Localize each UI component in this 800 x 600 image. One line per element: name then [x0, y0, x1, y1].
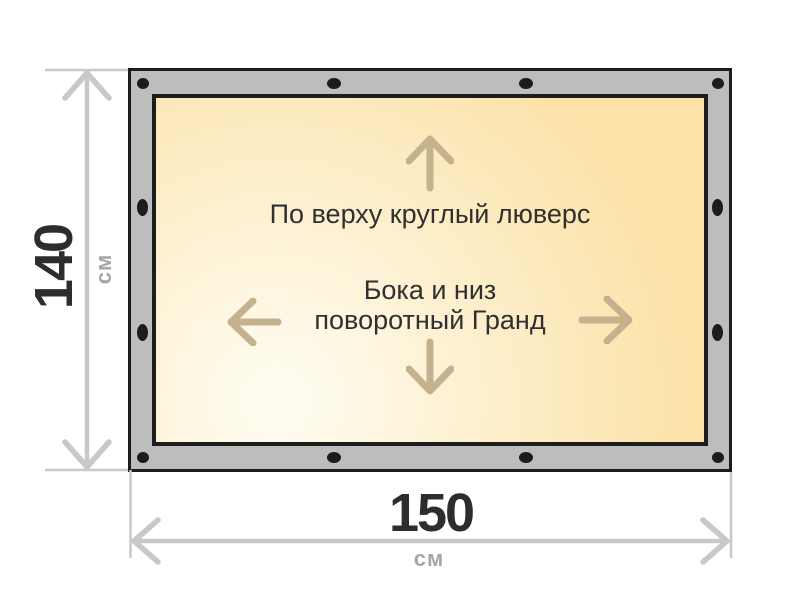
- top-edge-note: По верху круглый люверс: [150, 198, 710, 230]
- grommet-dot: [712, 199, 723, 216]
- sides-bottom-note-line1: Бока и низ: [150, 275, 710, 305]
- banner-size-diagram: По верху круглый люверс Бока и низ повор…: [0, 0, 800, 600]
- height-unit: см: [89, 219, 119, 319]
- grommet-dot: [327, 78, 341, 89]
- grommet-dot: [712, 78, 724, 89]
- height-value: 140: [29, 167, 79, 367]
- sides-bottom-note-line2: поворотный Гранд: [150, 305, 710, 335]
- grommet-dot: [519, 78, 533, 89]
- sides-bottom-note: Бока и низ поворотный Гранд: [150, 275, 710, 335]
- width-unit: см: [379, 544, 479, 574]
- arrow-up-icon: [406, 132, 454, 192]
- arrow-down-icon: [406, 338, 454, 398]
- width-value: 150: [331, 487, 531, 539]
- grommet-dot: [712, 324, 723, 341]
